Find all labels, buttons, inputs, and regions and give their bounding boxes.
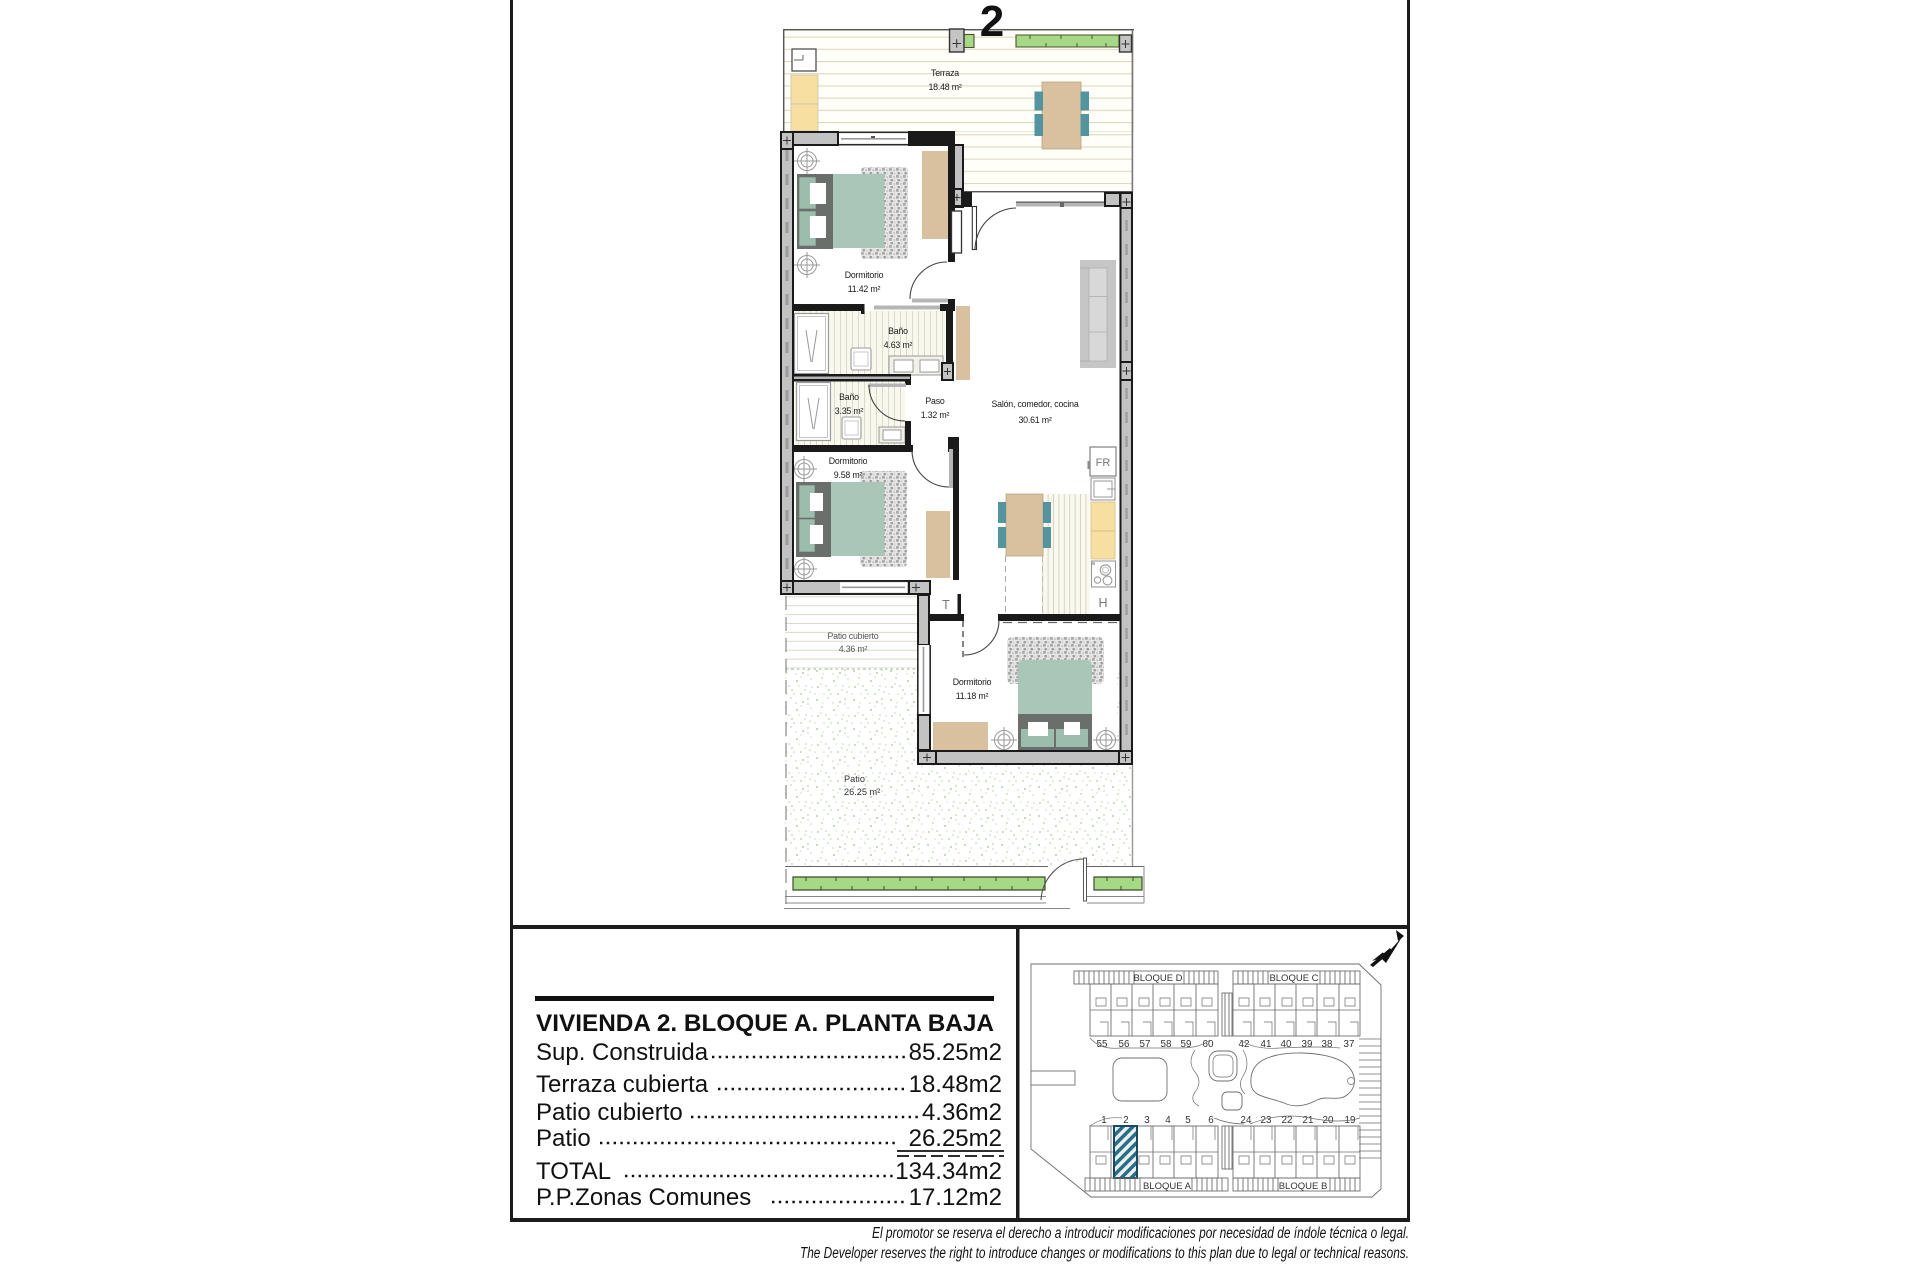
svg-text:2: 2 — [980, 0, 1004, 46]
svg-text:Terraza cubierta: Terraza cubierta — [536, 1071, 709, 1098]
svg-text:BLOQUE B: BLOQUE B — [1279, 1181, 1328, 1192]
svg-text:26.25 m²: 26.25 m² — [844, 787, 880, 797]
svg-text:22: 22 — [1282, 1115, 1293, 1126]
svg-text:The Developer reserves the rig: The Developer reserves the right to intr… — [800, 1245, 1409, 1262]
svg-text:38: 38 — [1322, 1039, 1333, 1050]
svg-text:BLOQUE D: BLOQUE D — [1133, 973, 1182, 984]
svg-text:26.25m2: 26.25m2 — [909, 1125, 1002, 1152]
svg-text:18.48 m²: 18.48 m² — [928, 82, 961, 92]
svg-text:TOTAL: TOTAL — [536, 1158, 611, 1185]
svg-text:2: 2 — [1123, 1115, 1128, 1126]
svg-text:El promotor se reserva el dere: El promotor se reserva el derecho a intr… — [872, 1225, 1409, 1242]
svg-text:3.35 m²: 3.35 m² — [835, 406, 864, 416]
svg-text:11.18 m²: 11.18 m² — [956, 691, 989, 701]
svg-text:60: 60 — [1203, 1039, 1214, 1050]
svg-text:1: 1 — [1101, 1115, 1106, 1126]
svg-text:5: 5 — [1185, 1115, 1191, 1126]
svg-text:Dormitorio: Dormitorio — [829, 456, 868, 466]
svg-text:Patio: Patio — [536, 1125, 591, 1152]
svg-text:23: 23 — [1261, 1115, 1272, 1126]
svg-text:9.58 m²: 9.58 m² — [834, 470, 863, 480]
svg-text:Dormitorio: Dormitorio — [953, 677, 992, 687]
svg-text:4.36m2: 4.36m2 — [922, 1099, 1002, 1126]
svg-text:4: 4 — [1165, 1115, 1171, 1126]
svg-text:Terraza: Terraza — [931, 68, 959, 78]
svg-text:Dormitorio: Dormitorio — [845, 270, 884, 280]
svg-text:3: 3 — [1144, 1115, 1150, 1126]
svg-text:6: 6 — [1208, 1115, 1214, 1126]
svg-text:30.61 m²: 30.61 m² — [1018, 415, 1051, 425]
svg-text:Paso: Paso — [925, 396, 945, 406]
svg-text:1.32 m²: 1.32 m² — [921, 410, 950, 420]
svg-text:P.P.Zonas Comunes: P.P.Zonas Comunes — [536, 1184, 751, 1211]
svg-text:18.48m2: 18.48m2 — [909, 1071, 1002, 1098]
svg-text:H: H — [1098, 596, 1107, 610]
svg-text:BLOQUE C: BLOQUE C — [1269, 973, 1318, 984]
svg-text:85.25m2: 85.25m2 — [909, 1039, 1002, 1066]
svg-text:Sup. Construida: Sup. Construida — [536, 1039, 709, 1066]
svg-text:Baño: Baño — [839, 392, 859, 402]
svg-text:Patio cubierto: Patio cubierto — [828, 631, 879, 641]
svg-text:Patio: Patio — [844, 774, 865, 784]
svg-text:FR: FR — [1096, 457, 1111, 469]
svg-text:BLOQUE A: BLOQUE A — [1143, 1181, 1192, 1192]
svg-text:VIVIENDA 2. BLOQUE A. PLANTA B: VIVIENDA 2. BLOQUE A. PLANTA BAJA — [536, 1010, 994, 1037]
svg-text:T: T — [942, 598, 950, 612]
svg-text:11.42 m²: 11.42 m² — [848, 284, 881, 294]
svg-text:24: 24 — [1241, 1115, 1252, 1126]
svg-text:40: 40 — [1281, 1039, 1292, 1050]
svg-text:59: 59 — [1181, 1039, 1192, 1050]
svg-text:4.36 m²: 4.36 m² — [839, 644, 868, 654]
svg-text:21: 21 — [1303, 1115, 1314, 1126]
svg-text:134.34m2: 134.34m2 — [895, 1158, 1002, 1185]
svg-text:Salón, comedor, cocina: Salón, comedor, cocina — [991, 399, 1078, 409]
svg-text:17.12m2: 17.12m2 — [909, 1184, 1002, 1211]
svg-text:Patio cubierto: Patio cubierto — [536, 1099, 683, 1126]
svg-text:39: 39 — [1302, 1039, 1313, 1050]
svg-text:37: 37 — [1344, 1039, 1355, 1050]
svg-text:Baño: Baño — [888, 326, 908, 336]
svg-text:4.63 m²: 4.63 m² — [884, 340, 913, 350]
